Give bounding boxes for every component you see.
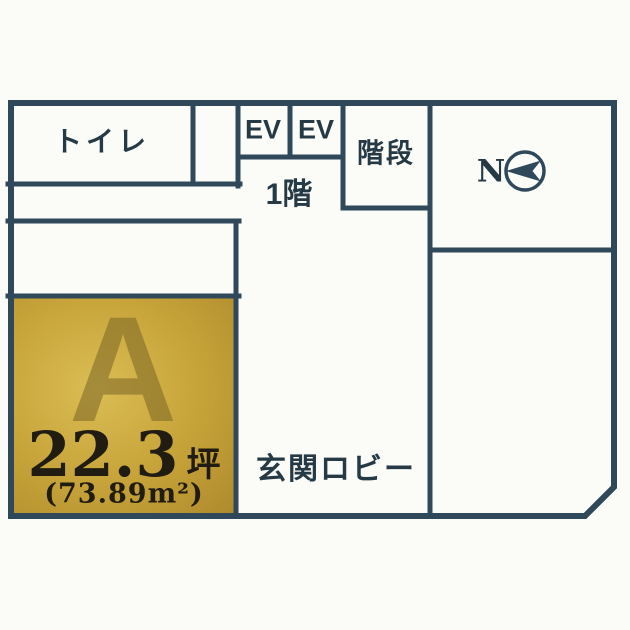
floor-number-label: 1階 [266,180,313,210]
compass-needle [506,161,541,182]
toilet-room-label: トイレ [54,128,150,156]
north-label: N [477,157,505,188]
stairs-room-label: 階段 [357,141,415,168]
elevator-1-label: EV [245,117,281,144]
floor-plan: トイレ EV EV 階段 1階 玄関ロビー N A 22.3坪 (73.89m²… [0,0,630,630]
elevator-2-label: EV [298,117,334,144]
entrance-lobby-label: 玄関ロビー [256,455,416,485]
unit-a-area-sqm: (73.89m²) [44,481,204,508]
unit-a-area-tsubo: 22.3坪 [27,424,220,486]
compass-icon [502,148,548,194]
